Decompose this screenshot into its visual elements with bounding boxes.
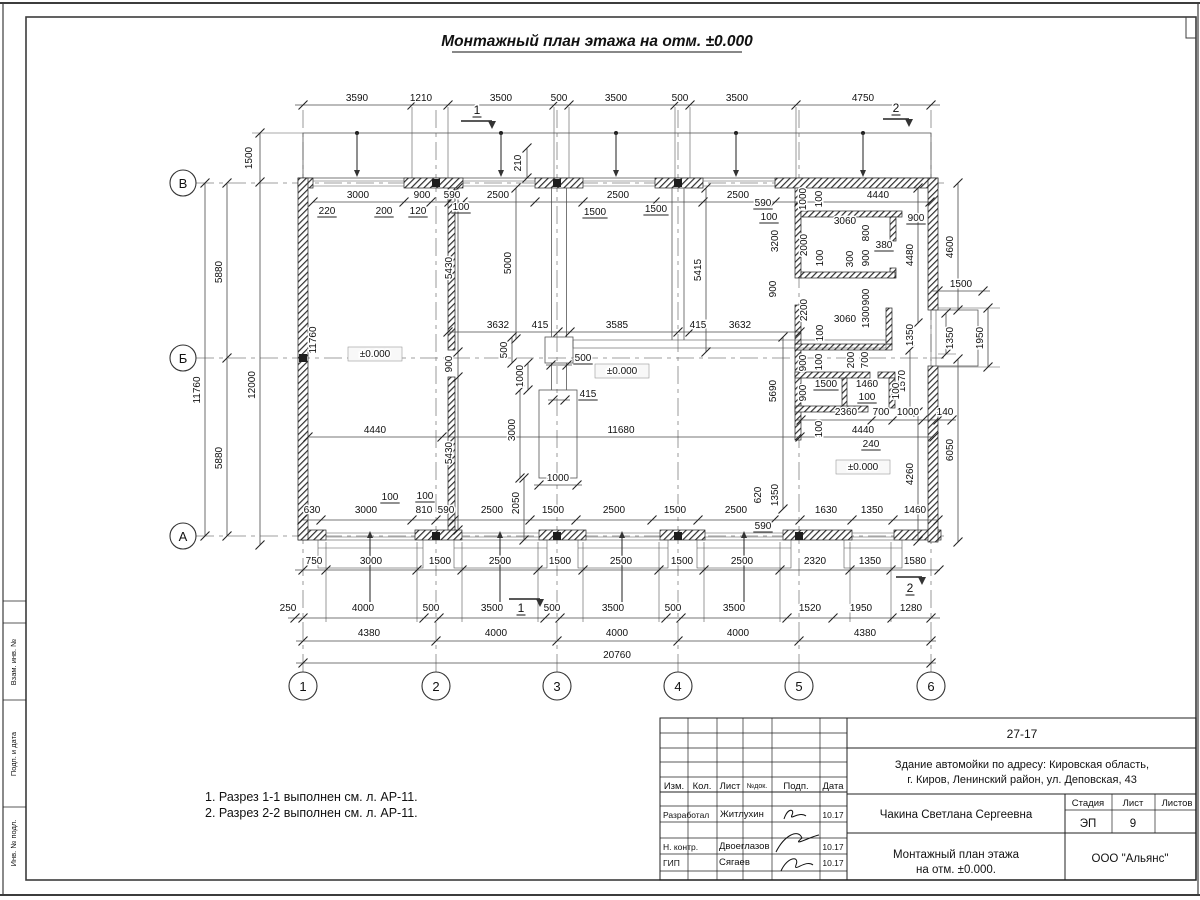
axis-label: 1 [299, 679, 306, 694]
row-date: 10.17 [822, 842, 844, 852]
col-podp: Подп. [783, 781, 808, 792]
dim-label: 500 [672, 93, 689, 104]
dim-label: 1630 [815, 505, 838, 516]
dim-label: 11760 [192, 376, 203, 404]
dim-label: 700 [873, 407, 890, 418]
dim-label: 3000 [355, 505, 378, 516]
dim-label: 240 [863, 439, 880, 450]
dim-label: 1500 [950, 279, 973, 290]
dim-label: 1500 [549, 556, 572, 567]
dim-label: 500 [423, 603, 440, 614]
signature [781, 859, 813, 871]
dim-label: 3500 [723, 603, 746, 614]
dim-label: 1350 [861, 505, 884, 516]
dim-label: 590 [755, 521, 772, 532]
dim-label: 100 [814, 190, 825, 207]
dim-label: 3200 [770, 229, 781, 252]
dim-label: 5430 [444, 441, 455, 464]
row-role: Разработал [663, 810, 709, 820]
axis-label: Б [179, 351, 188, 366]
dim-label: 810 [416, 505, 433, 516]
col-ndok: №док. [747, 783, 768, 790]
dim-label: 500 [544, 603, 561, 614]
dim-label: 415 [532, 320, 549, 331]
dim-label: 100 [761, 212, 778, 223]
row-name: Житлухин [720, 809, 764, 820]
dim-label: 1460 [904, 505, 927, 516]
dim-label: 415 [580, 389, 597, 400]
dim-label: 590 [438, 505, 455, 516]
dim-label: 3000 [360, 556, 383, 567]
dim-label: 500 [499, 341, 510, 358]
title-block: 27-17 Здание автомойки по адресу: Кировс… [660, 718, 1196, 880]
dim-label: 3590 [346, 93, 369, 104]
dim-label: 590 [444, 190, 461, 201]
dim-label: 3000 [507, 418, 518, 441]
dim-label: 5880 [214, 260, 225, 283]
row-role: Н. контр. [663, 842, 698, 852]
dim-label: 1300 [861, 305, 872, 328]
dim-label: 900 [768, 280, 779, 297]
dim-label: 300 [845, 250, 856, 267]
dim-label: 1520 [799, 603, 822, 614]
dim-label: 1500 [429, 556, 452, 567]
window-lines [313, 181, 936, 537]
author-name: Чакина Светлана Сергеевна [880, 809, 1033, 821]
company-name: ООО "Альянс" [1092, 853, 1169, 865]
section-label: 1 [518, 601, 525, 615]
dim-label: 620 [753, 486, 764, 503]
dim-label: 500 [665, 603, 682, 614]
dim-label: 3632 [729, 320, 752, 331]
axis-label: 4 [674, 679, 681, 694]
dim-label: 200 [376, 206, 393, 217]
dim-label: 590 [755, 198, 772, 209]
dim-label: 4000 [352, 603, 375, 614]
dim-label: 1950 [975, 326, 986, 349]
stage-label: Стадия [1072, 798, 1104, 809]
dim-label: 5430 [444, 256, 455, 279]
dim-label: 140 [937, 407, 954, 418]
corner-doc-box [1186, 17, 1196, 38]
dim-label: 5415 [693, 258, 704, 281]
dim-label: 120 [410, 206, 427, 217]
col-data: Дата [822, 781, 844, 792]
dim-label: 200 [846, 351, 857, 368]
dim-label: 900 [798, 384, 809, 401]
dim-label: 1000 [547, 473, 570, 484]
dim-label: 1350 [905, 323, 916, 346]
dim-label: 100 [891, 382, 902, 399]
dim-label: 1280 [900, 603, 923, 614]
dim-label: 2320 [804, 556, 827, 567]
dim-label: 630 [304, 505, 321, 516]
elevation-mark: ±0.000 [848, 462, 879, 473]
row-role: ГИП [663, 858, 680, 868]
dim-label: 415 [690, 320, 707, 331]
dim-label: 4440 [364, 425, 387, 436]
dim-label: 11680 [607, 425, 635, 436]
col-kol: Кол. [693, 781, 712, 792]
dim-label: 2500 [607, 190, 630, 201]
dim-label: 5690 [768, 379, 779, 402]
dim-label: 1000 [798, 187, 809, 210]
dim-label: 2500 [731, 556, 754, 567]
dim-label: 100 [382, 492, 399, 503]
project-address-2: г. Киров, Ленинский район, ул. Деповская… [907, 774, 1137, 786]
col-list: Лист [720, 781, 741, 792]
dim-label: 4000 [485, 628, 508, 639]
dim-label: 1350 [770, 483, 781, 506]
doc-number: 27-17 [1007, 727, 1038, 741]
axis-label: 2 [432, 679, 439, 694]
note-2: 2. Разрез 2-2 выполнен см. л. АР-11. [205, 806, 418, 820]
drawing-sheet: Взам. инв. № Подп. и дата Инв. № подл. М… [0, 0, 1200, 900]
margin-cell-3: Инв. № подл. [9, 820, 18, 867]
dim-label: 1500 [584, 207, 607, 218]
dim-label: 3500 [481, 603, 504, 614]
dim-label: 100 [859, 392, 876, 403]
page-title: Монтажный план этажа на отм. ±0.000 [441, 33, 753, 50]
dim-label: 2500 [725, 505, 748, 516]
dim-label: 4000 [727, 628, 750, 639]
dim-label: 700 [860, 351, 871, 368]
floor-plan-canvas: Взам. инв. № Подп. и дата Инв. № подл. М… [0, 0, 1200, 900]
dim-label: 100 [815, 324, 826, 341]
axis-label: 5 [795, 679, 802, 694]
dim-label: 100 [417, 491, 434, 502]
dim-label: 100 [814, 420, 825, 437]
dim-label: 4480 [905, 243, 916, 266]
dim-label: 2500 [481, 505, 504, 516]
project-address-1: Здание автомойки по адресу: Кировская об… [895, 759, 1149, 771]
dim-label: 2500 [727, 190, 750, 201]
section-label: 2 [907, 581, 914, 595]
dim-label: 1500 [542, 505, 565, 516]
dim-label: 4380 [854, 628, 877, 639]
dim-label: 900 [798, 354, 809, 371]
elevation-mark: ±0.000 [360, 349, 391, 360]
section-label: 2 [893, 101, 900, 115]
margin-cell-1: Взам. инв. № [9, 639, 18, 685]
dim-label: 900 [861, 288, 872, 305]
dim-label: 3500 [602, 603, 625, 614]
dim-label: 1500 [664, 505, 687, 516]
dim-label: 4260 [905, 462, 916, 485]
dim-label: 2200 [799, 298, 810, 321]
dim-label: 210 [513, 154, 524, 171]
dim-label: 3060 [834, 314, 857, 325]
stage-value: ЭП [1080, 818, 1097, 830]
elevation-mark: ±0.000 [607, 366, 638, 377]
dim-label: 1460 [856, 379, 879, 390]
row-date: 10.17 [822, 858, 844, 868]
dim-label: 2500 [610, 556, 633, 567]
axis-label: 6 [927, 679, 934, 694]
dim-label: 220 [319, 206, 336, 217]
dim-label: 3500 [726, 93, 749, 104]
sheet-label: Лист [1123, 798, 1144, 809]
dim-label: 3500 [605, 93, 628, 104]
dim-label: 4600 [945, 235, 956, 258]
dim-label: 750 [306, 556, 323, 567]
dim-label: 380 [876, 240, 893, 251]
dim-label: 4440 [852, 425, 875, 436]
row-name: Сягаев [719, 857, 750, 868]
dim-label: 1950 [850, 603, 873, 614]
dim-label: 4000 [606, 628, 629, 639]
dim-label: 2050 [511, 491, 522, 514]
dim-label: 800 [861, 224, 872, 241]
dim-label: 1000 [515, 364, 526, 387]
dim-label: 3500 [490, 93, 513, 104]
dim-label: 4440 [867, 190, 890, 201]
dim-label: 1000 [897, 407, 920, 418]
dim-label: 1350 [859, 556, 882, 567]
signature [784, 810, 806, 819]
drawing-name-2: на отм. ±0.000. [916, 864, 996, 876]
row-date: 10.17 [822, 810, 844, 820]
dim-label: 5000 [503, 251, 514, 274]
drawing-name-1: Монтажный план этажа [893, 849, 1020, 861]
dim-label: 11760 [308, 326, 319, 354]
dim-label: 12000 [247, 371, 258, 399]
dim-label: 2500 [489, 556, 512, 567]
dim-label: 1500 [244, 146, 255, 169]
dim-label: 2500 [487, 190, 510, 201]
dim-label: 3632 [487, 320, 510, 331]
dim-label: 100 [815, 249, 826, 266]
dim-label: 1500 [671, 556, 694, 567]
dim-label: 3585 [606, 320, 629, 331]
dim-label: 900 [861, 249, 872, 266]
axis-label: 3 [553, 679, 560, 694]
dim-label: 5880 [214, 446, 225, 469]
dim-label: 2000 [799, 233, 810, 256]
dim-label: 3060 [834, 216, 857, 227]
canopy [303, 131, 931, 178]
note-1: 1. Разрез 1-1 выполнен см. л. АР-11. [205, 790, 418, 804]
service-pit [539, 188, 886, 478]
dim-label: 4380 [358, 628, 381, 639]
dim-label: 2360 [835, 407, 858, 418]
dim-label: 900 [444, 355, 455, 372]
dim-label: 2500 [603, 505, 626, 516]
dim-label: 1500 [645, 204, 668, 215]
dim-label: 6050 [945, 438, 956, 461]
axis-label: В [179, 176, 188, 191]
dim-label: 1500 [815, 379, 838, 390]
dim-label: 250 [280, 603, 297, 614]
dim-label: 100 [453, 202, 470, 213]
dim-label: 3000 [347, 190, 370, 201]
dim-label: 20760 [603, 650, 631, 661]
dim-label: 100 [814, 353, 825, 370]
dim-label: 500 [551, 93, 568, 104]
sheets-label: Листов [1162, 798, 1193, 809]
signature [776, 834, 819, 852]
row-name: Двоеглазов [719, 841, 770, 852]
section-label: 1 [474, 103, 481, 117]
dim-label: 500 [575, 353, 592, 364]
axis-label: А [179, 529, 188, 544]
dim-label: 900 [908, 213, 925, 224]
dim-label: 4750 [852, 93, 875, 104]
dim-label: 1210 [410, 93, 433, 104]
margin-cell-2: Подп. и дата [9, 731, 18, 776]
dim-label: 1580 [904, 556, 927, 567]
col-izm: Изм. [664, 781, 684, 792]
sheet-number: 9 [1130, 818, 1136, 830]
dim-label: 1350 [945, 326, 956, 349]
dim-label: 900 [414, 190, 431, 201]
